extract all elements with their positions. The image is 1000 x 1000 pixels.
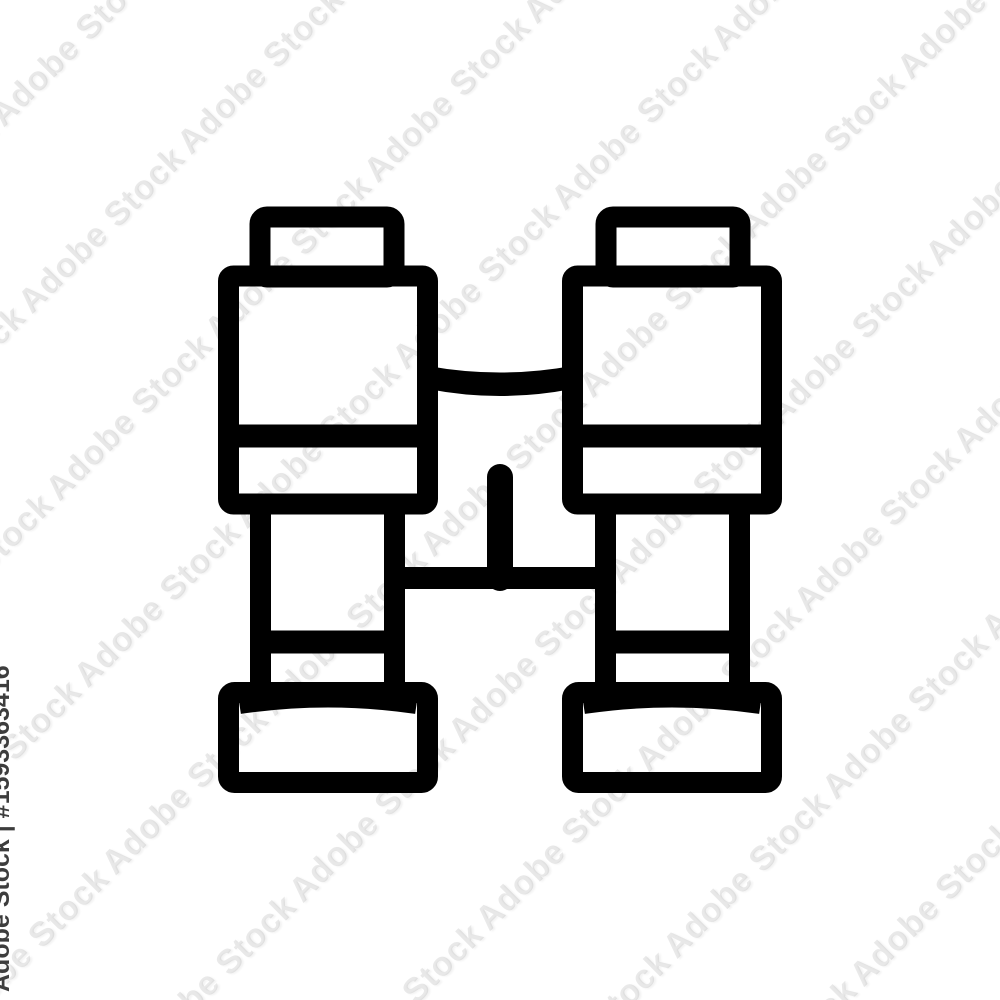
left-tube bbox=[229, 217, 428, 783]
image-canvas: Adobe StockAdobe StockAdobe StockAdobe S… bbox=[0, 0, 1000, 1000]
binoculars-icon-group bbox=[229, 217, 772, 783]
right-lens-top-curve bbox=[584, 702, 760, 709]
binoculars-icon bbox=[0, 0, 1000, 1000]
left-body bbox=[229, 276, 428, 504]
right-body bbox=[573, 276, 772, 504]
bridge-hinge bbox=[428, 366, 572, 396]
left-lens-top-curve bbox=[240, 702, 416, 709]
stock-id-text: Adobe Stock | #1593363416 bbox=[0, 665, 16, 992]
right-tube bbox=[573, 217, 772, 783]
